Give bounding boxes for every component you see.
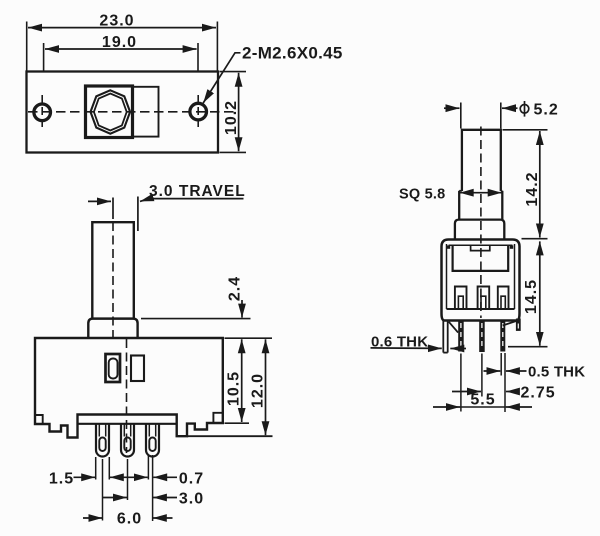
svg-text:SQ 5.8: SQ 5.8 [399, 187, 445, 203]
svg-text:14.2: 14.2 [524, 171, 541, 206]
svg-text:14.5: 14.5 [523, 279, 540, 314]
svg-text:19.0: 19.0 [102, 34, 137, 51]
svg-text:0.7: 0.7 [179, 471, 204, 488]
svg-text:2.75: 2.75 [521, 385, 556, 402]
svg-text:10.5: 10.5 [226, 371, 243, 406]
svg-text:6.0: 6.0 [117, 511, 142, 528]
svg-text:23.0: 23.0 [99, 12, 134, 29]
svg-text:12.0: 12.0 [250, 373, 267, 408]
svg-text:2.4: 2.4 [227, 276, 244, 301]
svg-text:1.5: 1.5 [49, 471, 74, 488]
svg-text:2-M2.6X0.45: 2-M2.6X0.45 [242, 44, 343, 63]
svg-text:3.0 TRAVEL: 3.0 TRAVEL [149, 183, 246, 200]
svg-text:0.5 THK: 0.5 THK [528, 364, 585, 381]
svg-text:10.2: 10.2 [223, 100, 240, 135]
svg-text:3.0: 3.0 [179, 491, 204, 508]
svg-text:5.2: 5.2 [534, 102, 559, 119]
svg-text:5.5: 5.5 [470, 392, 495, 409]
